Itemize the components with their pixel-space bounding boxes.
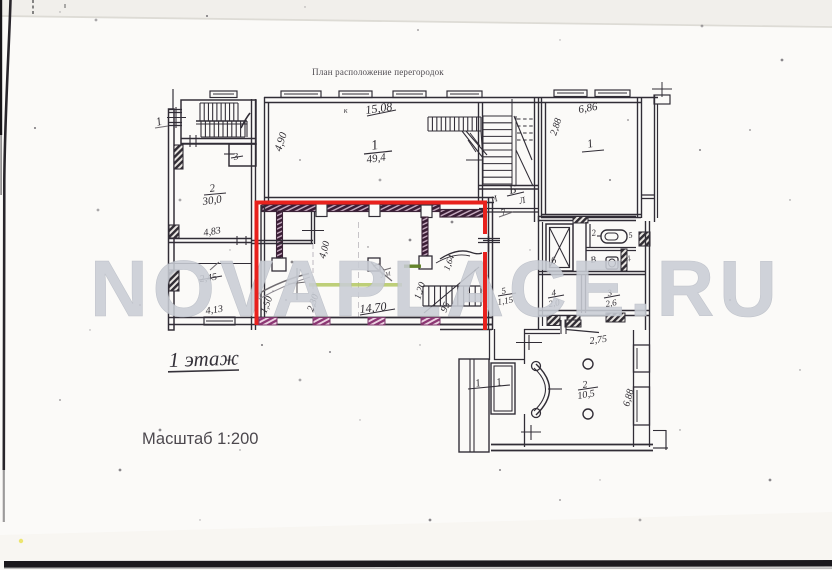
svg-text:План расположение перегородок: План расположение перегородок [312,67,444,77]
svg-text:Масштаб 1:200: Масштаб 1:200 [142,430,258,448]
svg-text:1 этаж: 1 этаж [168,346,239,372]
svg-text:NOVAPLACE.RU: NOVAPLACE.RU [90,244,782,333]
